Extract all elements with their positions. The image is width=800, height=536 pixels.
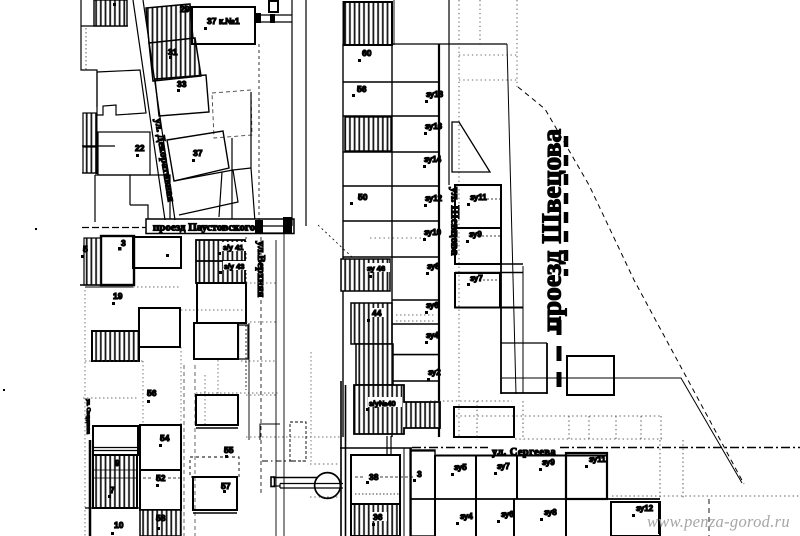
svg-text:44: 44	[372, 308, 382, 318]
svg-text:19: 19	[113, 291, 123, 301]
svg-text:37 к.№1: 37 к.№1	[207, 16, 240, 26]
svg-text:3: 3	[121, 238, 126, 248]
svg-text:38: 38	[369, 472, 379, 482]
svg-text:зу4: зу4	[426, 331, 439, 340]
svg-text:33: 33	[177, 79, 187, 89]
svg-text:10: 10	[114, 520, 124, 530]
svg-text:проезд Швецова: проезд Швецова	[536, 129, 567, 332]
svg-text:7: 7	[110, 486, 115, 495]
svg-text:з/у 43: з/у 43	[224, 262, 244, 271]
svg-text:36: 36	[373, 512, 383, 522]
svg-text:55: 55	[224, 445, 234, 455]
svg-text:зу4: зу4	[460, 512, 473, 521]
svg-text:зу10: зу10	[424, 228, 442, 237]
svg-text:зу 46: зу 46	[367, 264, 385, 273]
svg-text:22: 22	[135, 143, 145, 153]
svg-text:зу16: зу16	[425, 122, 443, 131]
svg-text:зу8: зу8	[427, 262, 440, 271]
svg-text:зу9: зу9	[542, 458, 555, 467]
svg-text:зу7: зу7	[497, 462, 510, 471]
svg-text:проезд Паустовского: проезд Паустовского	[153, 222, 256, 234]
svg-text:57: 57	[221, 481, 231, 491]
svg-text:ул. Свердлова: ул. Свердлова	[85, 399, 91, 434]
svg-text:37: 37	[193, 148, 203, 158]
svg-text:зу5: зу5	[454, 463, 467, 472]
svg-text:зу9: зу9	[469, 230, 482, 239]
svg-text:54: 54	[160, 433, 170, 443]
svg-text:ул.Верхняя: ул.Верхняя	[255, 241, 267, 297]
svg-text:зу11: зу11	[589, 455, 606, 464]
svg-text:зу2: зу2	[428, 368, 441, 377]
svg-text:www.penza-gorod.ru: www.penza-gorod.ru	[647, 512, 790, 531]
svg-text:3: 3	[417, 469, 422, 479]
svg-text:56: 56	[357, 84, 367, 94]
svg-text:зу11: зу11	[470, 193, 487, 202]
svg-text:60: 60	[362, 48, 372, 58]
svg-text:зу7: зу7	[470, 274, 483, 283]
svg-text:з/у 41: з/у 41	[223, 243, 243, 252]
svg-text:50: 50	[358, 192, 368, 202]
svg-text:29: 29	[180, 4, 190, 14]
svg-text:зу8: зу8	[544, 508, 557, 517]
svg-text:9: 9	[115, 459, 120, 468]
svg-text:5: 5	[83, 244, 88, 254]
svg-text:зу6: зу6	[426, 301, 439, 310]
svg-text:58: 58	[156, 513, 166, 523]
svg-text:зу14: зу14	[424, 155, 442, 164]
svg-text:31: 31	[168, 47, 178, 57]
svg-text:зу6: зу6	[501, 510, 514, 519]
svg-text:зу18: зу18	[426, 90, 444, 99]
svg-text:з/у№40: з/у№40	[369, 399, 396, 408]
svg-text:52: 52	[156, 473, 166, 483]
svg-text:зу12: зу12	[425, 194, 443, 203]
svg-text:56: 56	[147, 388, 157, 398]
